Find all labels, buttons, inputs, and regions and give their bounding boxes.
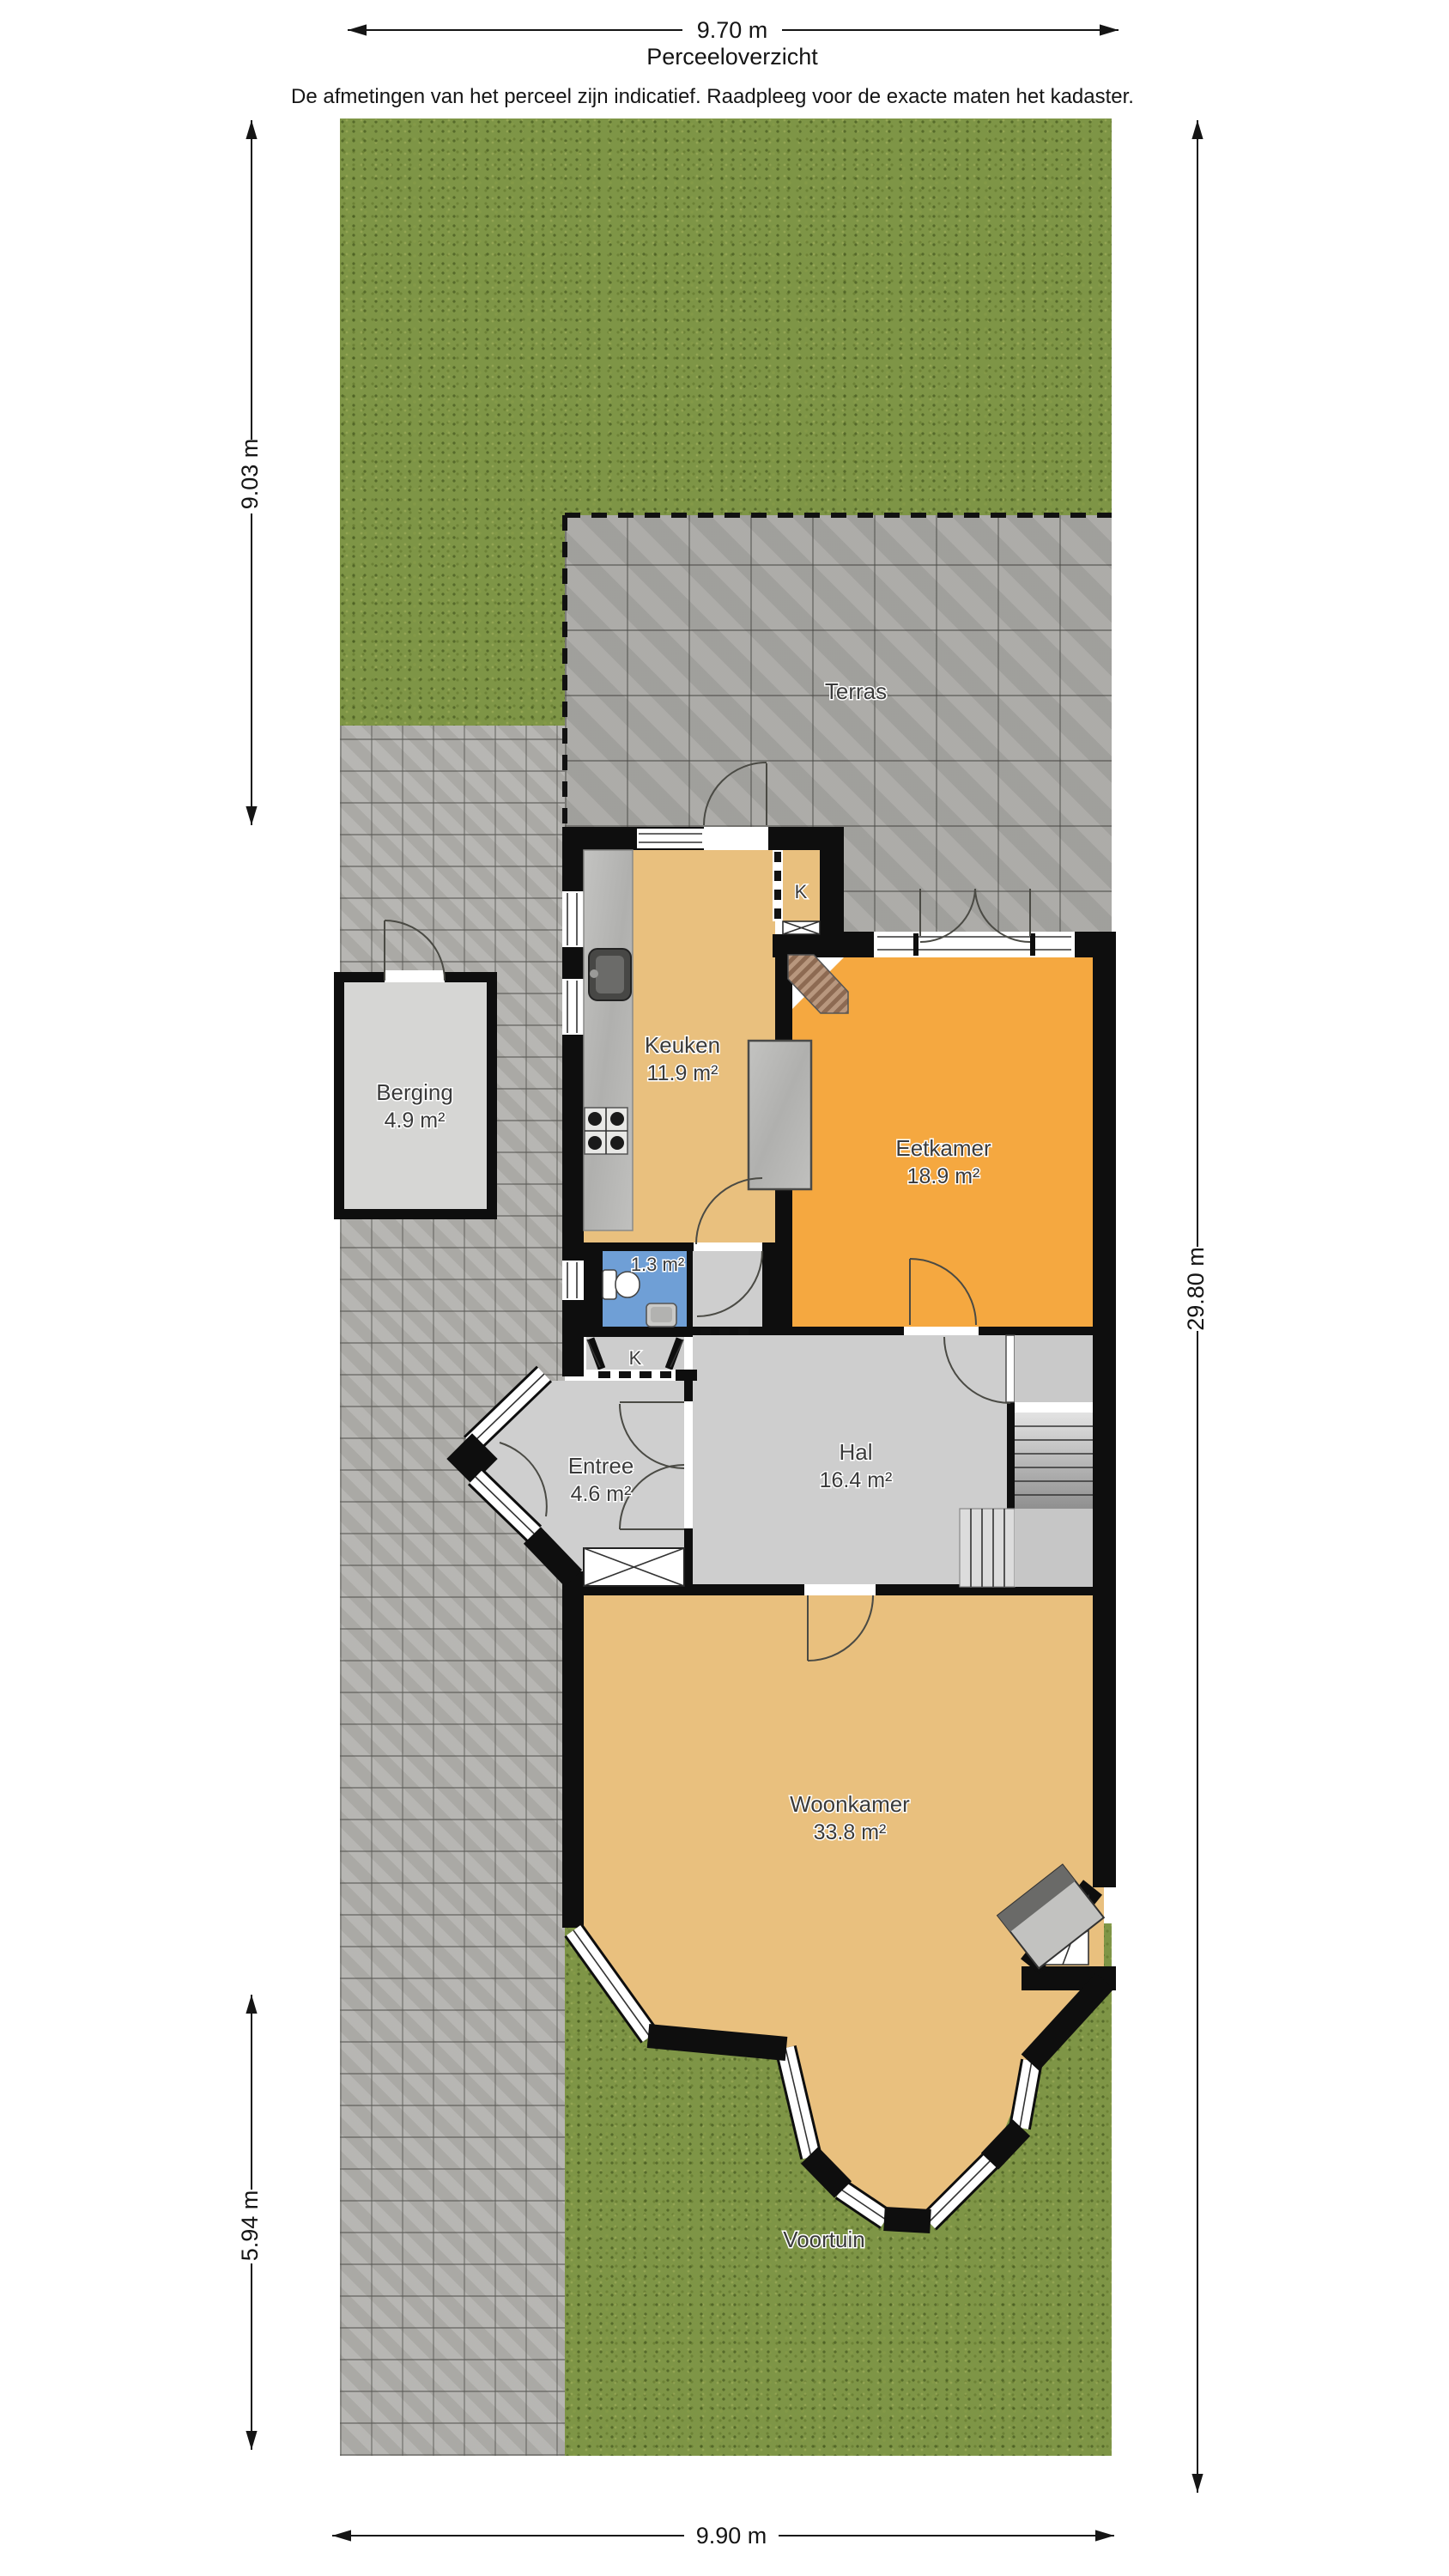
dim-left-lower: 5.94 m	[237, 2190, 263, 2262]
keuken-label: Keuken	[645, 1032, 720, 1058]
floorplan-drawing: Berging 4.9 m²	[0, 0, 1449, 2576]
keuken-top-openings	[637, 762, 768, 850]
plan-title: Perceeloverzicht	[646, 44, 818, 70]
keuken-terras-door-opening	[704, 827, 768, 850]
terras-label: Terras	[825, 678, 887, 704]
keuken-window	[637, 829, 704, 848]
chimney-block	[749, 1041, 811, 1189]
entree-area: 4.6 m²	[571, 1482, 632, 1506]
woonkamer-label: Woonkamer	[790, 1791, 910, 1817]
toilet-tank	[603, 1270, 616, 1299]
keuken-side-window-1	[562, 891, 584, 947]
hal-area: 16.4 m²	[820, 1468, 893, 1492]
entree-label: Entree	[568, 1453, 634, 1479]
eetkamer-area: 18.9 m²	[907, 1164, 980, 1188]
dim-top: 9.70 m	[697, 17, 768, 43]
hal-label: Hal	[839, 1439, 872, 1465]
eetkamer-terras-doors	[874, 889, 1075, 957]
room-berging: Berging 4.9 m²	[339, 920, 492, 1214]
toilet-window	[562, 1261, 584, 1300]
keuken-area: 11.9 m²	[647, 1061, 718, 1085]
entree-hal-opening	[684, 1401, 693, 1528]
toilet-area: 1.3 m²	[631, 1254, 684, 1275]
stairs-door-leaf	[1006, 1335, 1015, 1402]
closet-hal-label: K	[629, 1347, 642, 1369]
keuken-terras-door-arc	[704, 762, 767, 825]
stairs-landing	[1015, 1335, 1093, 1402]
berging-door-opening	[385, 970, 445, 982]
stairs-lower-flight	[960, 1509, 1015, 1587]
berging-label: Berging	[376, 1079, 453, 1105]
keuken-side-window-2	[562, 979, 584, 1035]
stairs-lower-landing	[1015, 1509, 1093, 1587]
dim-left-upper: 9.03 m	[237, 439, 263, 510]
woonkamer-area: 33.8 m²	[814, 1820, 887, 1844]
toilet-bowl	[615, 1272, 640, 1297]
closet-keuken-label: K	[795, 881, 808, 902]
floorplan-page: Berging 4.9 m²	[0, 0, 1449, 2576]
kitchen-counter	[584, 850, 633, 1230]
eetkamer-label: Eetkamer	[895, 1135, 991, 1161]
terras-dashed-boundary	[565, 515, 1112, 827]
disclaimer-note: De afmetingen van het perceel zijn indic…	[291, 85, 1134, 108]
berging-area: 4.9 m²	[385, 1109, 446, 1133]
dim-bottom: 9.90 m	[696, 2523, 767, 2549]
dim-right: 29.80 m	[1183, 1247, 1209, 1331]
voortuin-label: Voortuin	[783, 2227, 864, 2252]
